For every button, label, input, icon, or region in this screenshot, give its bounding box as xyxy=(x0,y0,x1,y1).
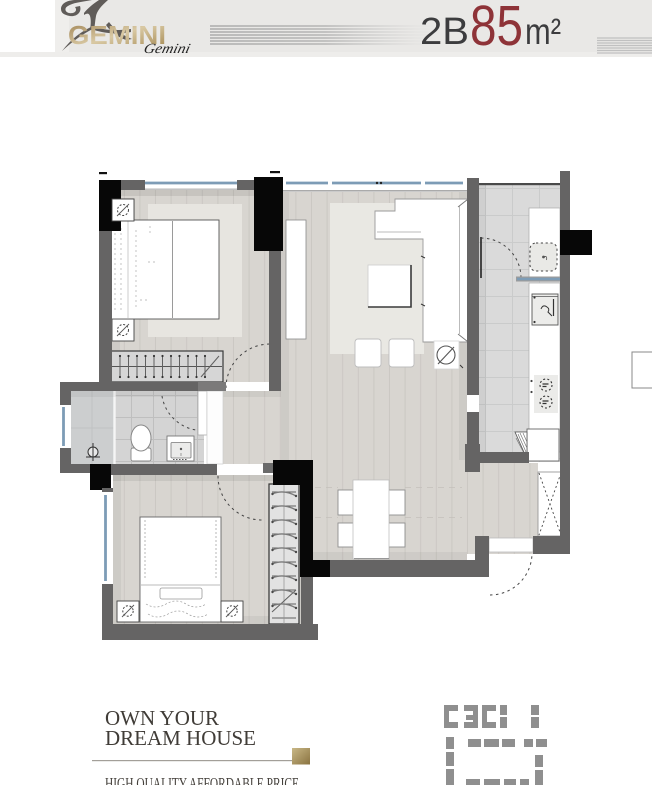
svg-text:2B: 2B xyxy=(420,11,469,53)
svg-text:Gemini: Gemini xyxy=(142,41,192,57)
svg-text:DREAM HOUSE: DREAM HOUSE xyxy=(105,726,256,750)
svg-text:85: 85 xyxy=(470,0,523,58)
svg-text:m²: m² xyxy=(525,11,561,52)
svg-text:HIGH QUALITY AFFORDABLE PRICE: HIGH QUALITY AFFORDABLE PRICE xyxy=(105,774,299,785)
